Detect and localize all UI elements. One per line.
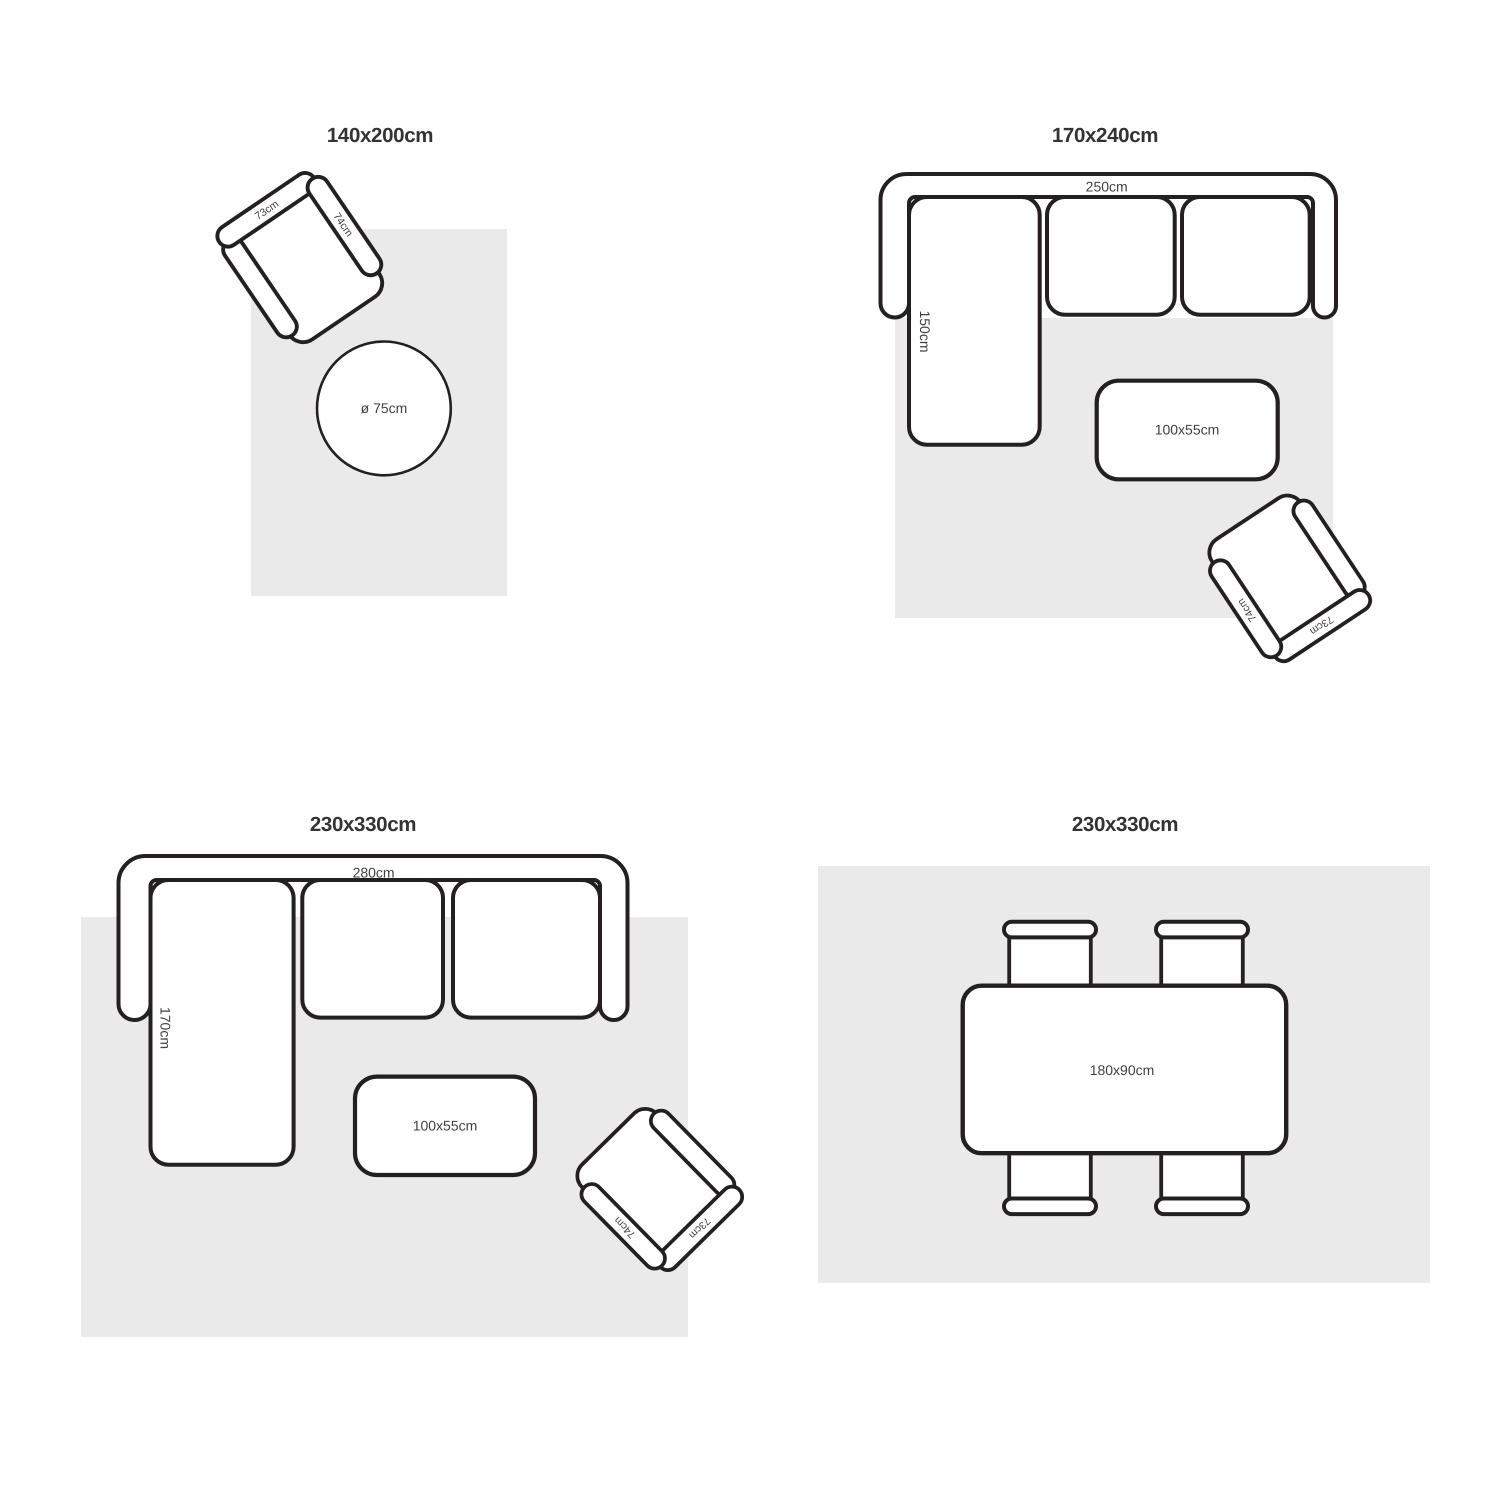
svg-text:100x55cm: 100x55cm — [1155, 422, 1220, 438]
svg-text:ø 75cm: ø 75cm — [361, 400, 408, 416]
svg-text:230x330cm: 230x330cm — [310, 813, 416, 836]
svg-text:170cm: 170cm — [157, 1007, 173, 1049]
svg-text:230x330cm: 230x330cm — [1072, 813, 1178, 836]
svg-text:170x240cm: 170x240cm — [1052, 124, 1158, 147]
svg-text:140x200cm: 140x200cm — [327, 124, 433, 147]
svg-text:280cm: 280cm — [353, 865, 395, 881]
svg-text:100x55cm: 100x55cm — [413, 1117, 478, 1133]
svg-text:150cm: 150cm — [917, 310, 933, 352]
svg-text:250cm: 250cm — [1086, 179, 1128, 195]
svg-text:180x90cm: 180x90cm — [1090, 1062, 1155, 1078]
